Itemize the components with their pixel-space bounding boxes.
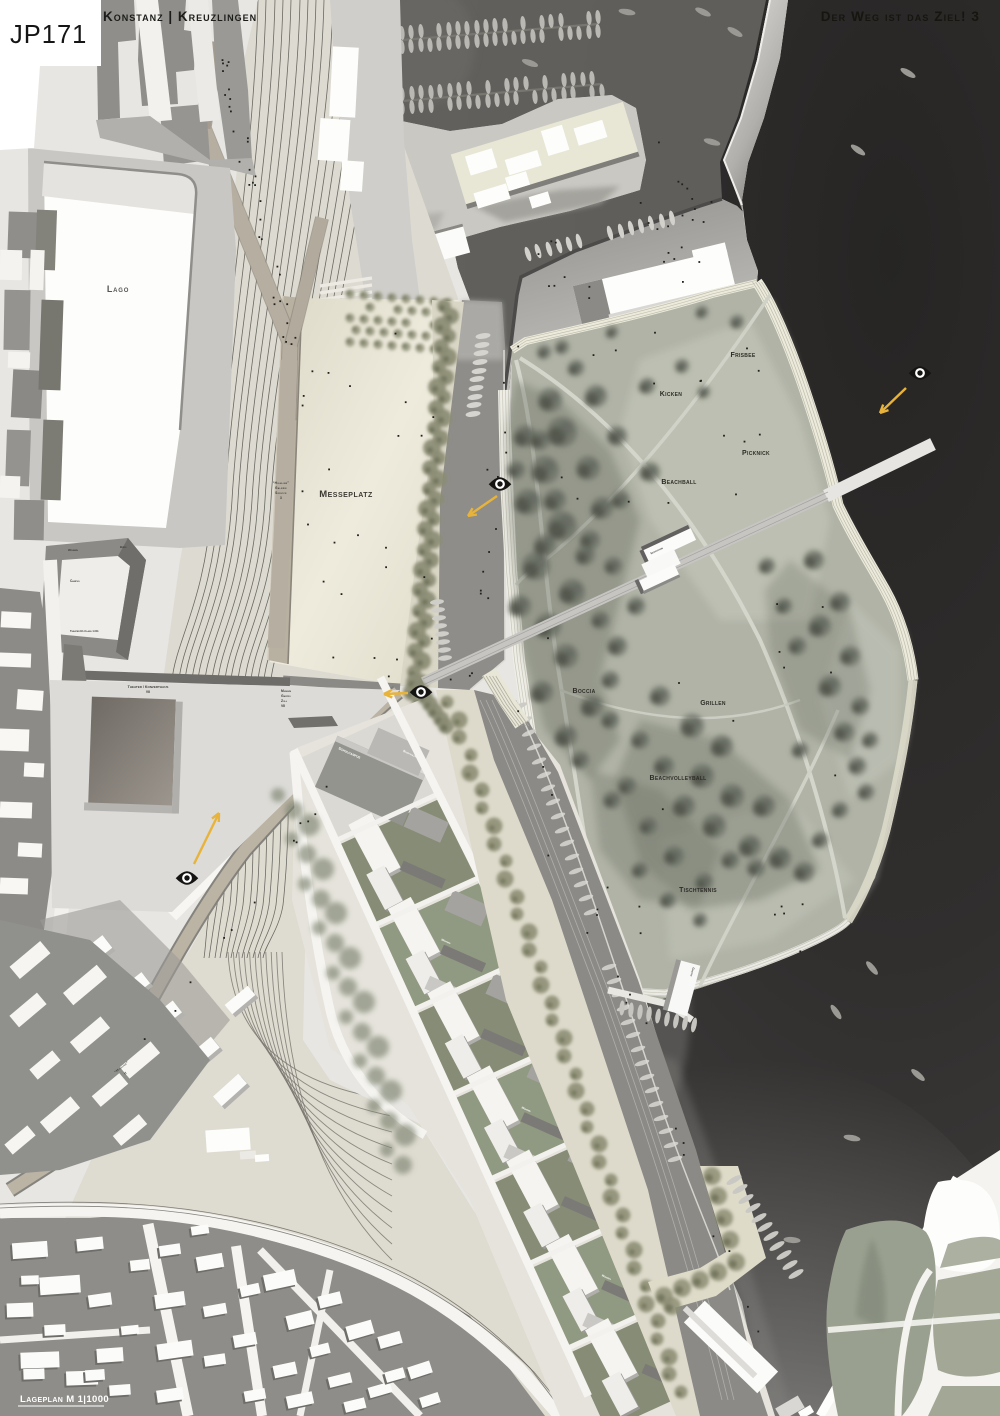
svg-text:Lageplan M 1|1000: Lageplan M 1|1000	[20, 1394, 109, 1405]
svg-text:Zoll: Zoll	[281, 699, 288, 703]
svg-text:VII: VII	[146, 690, 150, 694]
svg-text:Campus: Campus	[70, 579, 80, 583]
svg-text:Büro: Büro	[120, 545, 127, 549]
svg-text:Messeplatz: Messeplatz	[319, 489, 373, 500]
svg-text:3: 3	[280, 496, 282, 500]
svg-text:Museum: Museum	[281, 689, 291, 693]
svg-text:Galerie: Galerie	[275, 486, 287, 490]
svg-text:Grillen: Grillen	[700, 700, 726, 707]
svg-text:Gastro: Gastro	[281, 694, 291, 698]
svg-text:Picknick: Picknick	[742, 450, 770, 457]
svg-text:Frisbee: Frisbee	[731, 352, 756, 359]
svg-text:JP171: JP171	[10, 21, 87, 49]
svg-text:Der Weg ist das Ziel! 3: Der Weg ist das Ziel! 3	[821, 9, 980, 24]
svg-text:Beachball: Beachball	[661, 479, 696, 486]
svg-text:Wohnen: Wohnen	[68, 548, 78, 552]
svg-text:Beachvolleyball: Beachvolleyball	[649, 775, 706, 782]
svg-text:VII: VII	[281, 704, 285, 708]
svg-text:Theater E1-Class 1.OG: Theater E1-Class 1.OG	[70, 629, 99, 633]
svg-text:Tischtennis: Tischtennis	[679, 887, 717, 894]
svg-text:Kicken: Kicken	[660, 391, 683, 398]
svg-text:Konstanz | Kreuzlingen: Konstanz | Kreuzlingen	[103, 9, 257, 24]
svg-text:Lago: Lago	[107, 284, 129, 294]
svg-text:Service: Service	[275, 491, 287, 495]
svg-text:“Highline”: “Highline”	[273, 481, 290, 485]
svg-text:Theater / Konzerthaus: Theater / Konzerthaus	[128, 685, 169, 689]
svg-text:Boccia: Boccia	[573, 688, 596, 695]
